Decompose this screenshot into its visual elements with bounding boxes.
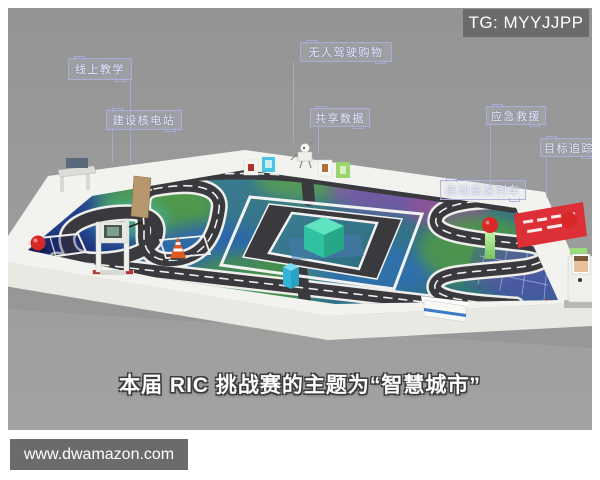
wooden-board bbox=[131, 176, 151, 218]
telegram-watermark: TG: MYYJJPP bbox=[463, 9, 589, 37]
field-label-emergency-rescue: 应急救援 bbox=[486, 106, 546, 125]
website-watermark: www.dwamazon.com bbox=[10, 439, 188, 470]
label-connector bbox=[318, 126, 319, 154]
bottom-strip: www.dwamazon.com bbox=[0, 430, 600, 480]
label-connector bbox=[112, 128, 113, 162]
label-connector bbox=[490, 124, 491, 188]
field-label-share-data: 共享数据 bbox=[310, 108, 370, 127]
field-label-target-tracking: 目标追踪 bbox=[540, 138, 592, 157]
scene: 00 bbox=[8, 8, 592, 430]
field-label-online-teaching: 线上教学 bbox=[68, 58, 132, 80]
field-label-start-high-speed-train: 启动高速列车 bbox=[440, 180, 526, 200]
cyan-cube bbox=[283, 263, 299, 289]
video-frame: 00 bbox=[0, 0, 600, 480]
field-label-driverless-shopping: 无人驾驶购物 bbox=[300, 42, 392, 62]
field-label-build-nuclear-plant: 建设核电站 bbox=[106, 110, 182, 130]
subtitle: 本届 RIC 挑战赛的主题为“智慧城市” bbox=[8, 369, 592, 399]
label-connector bbox=[293, 62, 294, 142]
label-connector bbox=[546, 156, 547, 198]
